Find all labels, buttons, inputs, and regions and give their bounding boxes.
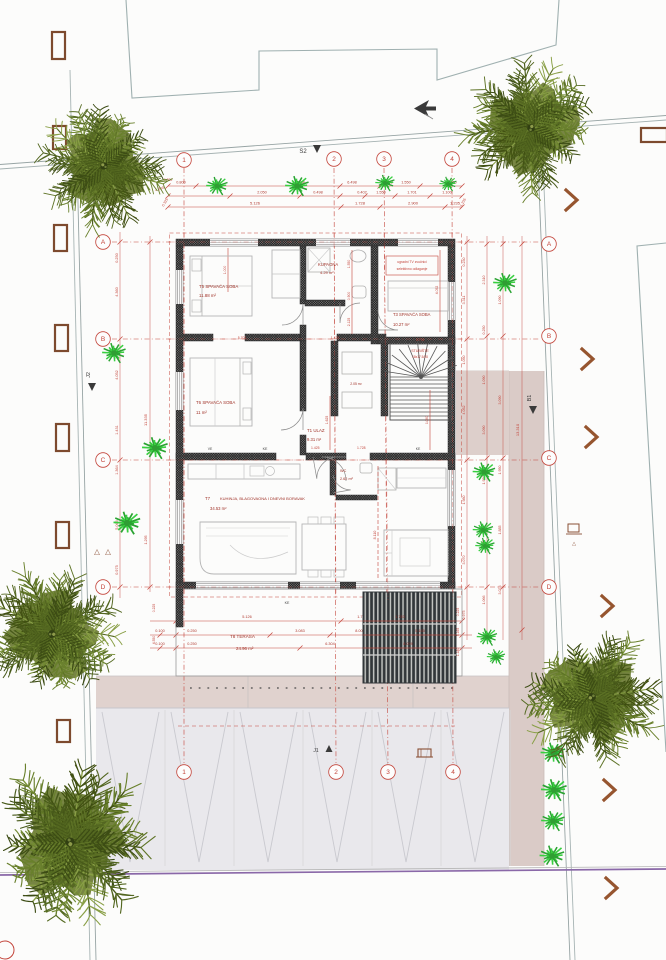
svg-text:KE: KE	[285, 601, 290, 605]
svg-text:4: 4	[451, 769, 455, 776]
svg-text:0.800: 0.800	[176, 181, 186, 185]
svg-text:A: A	[547, 241, 552, 248]
svg-text:2.05 m²: 2.05 m²	[350, 382, 362, 386]
svg-text:3.078: 3.078	[498, 586, 502, 595]
svg-text:J1: J1	[313, 748, 319, 754]
svg-text:4.550: 4.550	[152, 636, 156, 645]
svg-text:2: 2	[334, 769, 338, 776]
svg-text:S2: S2	[299, 149, 307, 155]
svg-text:11 m²: 11 m²	[196, 410, 207, 415]
svg-text:J2: J2	[86, 372, 92, 378]
svg-text:1.550: 1.550	[376, 191, 386, 195]
svg-text:3.778: 3.778	[416, 338, 425, 342]
svg-text:1.180: 1.180	[456, 648, 460, 657]
svg-text:0.498: 0.498	[313, 191, 323, 195]
svg-text:10.27 m²: 10.27 m²	[393, 322, 410, 327]
svg-text:△: △	[572, 541, 576, 547]
svg-text:4: 4	[450, 156, 454, 163]
svg-text:1.090: 1.090	[482, 376, 486, 385]
svg-text:D: D	[547, 584, 552, 591]
svg-text:1.783: 1.783	[395, 615, 405, 619]
svg-text:9.31 m²: 9.31 m²	[307, 437, 322, 442]
svg-text:0.402: 0.402	[357, 191, 367, 195]
svg-text:1.885: 1.885	[498, 526, 502, 535]
svg-text:T7: T7	[205, 496, 211, 501]
svg-text:T1 ULAZ: T1 ULAZ	[307, 428, 325, 433]
svg-text:1.364: 1.364	[115, 465, 119, 475]
svg-text:5.165: 5.165	[456, 628, 460, 637]
svg-text:1.728: 1.728	[357, 446, 366, 450]
svg-text:3.090: 3.090	[482, 426, 486, 435]
svg-text:1.050: 1.050	[462, 356, 466, 365]
svg-text:0.225: 0.225	[152, 604, 156, 613]
svg-text:0.250: 0.250	[482, 326, 486, 335]
svg-text:T3 SPAVAĆA SOBA: T3 SPAVAĆA SOBA	[393, 312, 431, 317]
svg-text:T8 TERASA: T8 TERASA	[230, 634, 256, 639]
svg-text:6.304: 6.304	[325, 642, 335, 646]
svg-text:34.53 m²: 34.53 m²	[210, 506, 227, 511]
svg-text:4.360: 4.360	[115, 287, 119, 297]
svg-text:3: 3	[386, 769, 390, 776]
svg-text:1.066: 1.066	[482, 596, 486, 605]
svg-text:1.550: 1.550	[401, 181, 411, 185]
svg-text:0.975: 0.975	[462, 611, 466, 620]
svg-text:0.230: 0.230	[462, 258, 466, 267]
svg-text:5.126: 5.126	[242, 615, 252, 619]
svg-text:A: A	[101, 239, 106, 246]
svg-text:2.62 m²: 2.62 m²	[340, 477, 354, 481]
svg-text:3.070: 3.070	[462, 556, 466, 565]
svg-text:13.310: 13.310	[515, 423, 520, 436]
svg-text:2.125: 2.125	[347, 318, 351, 327]
svg-text:0.250: 0.250	[187, 629, 197, 633]
svg-text:1.950: 1.950	[498, 466, 502, 475]
svg-text:24.96 m²: 24.96 m²	[236, 646, 254, 651]
svg-text:1.425: 1.425	[311, 446, 320, 450]
svg-text:5.126: 5.126	[250, 201, 261, 206]
svg-text:KE: KE	[416, 447, 421, 451]
svg-text:3.311: 3.311	[462, 296, 466, 305]
svg-text:1.100: 1.100	[442, 191, 452, 195]
svg-text:3: 3	[382, 156, 386, 163]
svg-text:3.090: 3.090	[498, 396, 502, 405]
svg-text:KUHINJA, BLAGOVAONA I DNEVNI B: KUHINJA, BLAGOVAONA I DNEVNI BORAVAK	[220, 496, 305, 501]
svg-text:18x17.5/28: 18x17.5/28	[412, 355, 428, 359]
svg-text:1: 1	[182, 157, 186, 164]
svg-text:KUPAONA: KUPAONA	[318, 262, 338, 267]
svg-text:8.110: 8.110	[373, 531, 377, 540]
svg-text:0.250: 0.250	[187, 642, 197, 646]
svg-text:8.009: 8.009	[403, 642, 413, 646]
svg-text:11.88 m²: 11.88 m²	[199, 293, 217, 298]
svg-text:5.702: 5.702	[238, 336, 247, 340]
svg-text:0.900: 0.900	[347, 292, 351, 301]
svg-text:0.225: 0.225	[456, 608, 460, 617]
svg-text:1.625: 1.625	[325, 416, 329, 425]
svg-text:2: 2	[332, 156, 336, 163]
svg-text:11.335: 11.335	[143, 413, 148, 426]
svg-text:B1: B1	[527, 395, 533, 402]
svg-text:1.550: 1.550	[347, 260, 351, 269]
svg-text:T6 SPAVAĆA SOBA: T6 SPAVAĆA SOBA	[196, 400, 235, 405]
svg-text:4.052: 4.052	[435, 286, 439, 295]
svg-text:3.083: 3.083	[295, 629, 305, 633]
svg-text:4.052: 4.052	[462, 406, 466, 415]
svg-text:STUBIŠTE: STUBIŠTE	[411, 348, 429, 353]
svg-text:4.052: 4.052	[115, 370, 119, 380]
svg-text:0.100: 0.100	[155, 642, 165, 646]
svg-text:2.310: 2.310	[482, 276, 486, 285]
svg-text:1: 1	[182, 769, 186, 776]
svg-text:0.100: 0.100	[155, 629, 165, 633]
svg-text:KE: KE	[263, 447, 268, 451]
svg-text:WC: WC	[340, 469, 347, 473]
svg-text:6.498: 6.498	[347, 181, 357, 185]
svg-text:2.050: 2.050	[257, 191, 267, 195]
svg-text:C: C	[101, 457, 106, 464]
svg-text:1.980: 1.980	[462, 496, 466, 505]
svg-text:1.090: 1.090	[498, 296, 502, 305]
svg-text:1.425: 1.425	[331, 336, 340, 340]
svg-text:4.29 m²: 4.29 m²	[320, 270, 334, 275]
svg-text:0.975: 0.975	[115, 565, 119, 575]
svg-text:1.090: 1.090	[425, 416, 429, 424]
svg-text:1.295: 1.295	[144, 536, 148, 545]
svg-text:B: B	[101, 336, 105, 343]
svg-text:2.900: 2.900	[408, 201, 419, 206]
svg-text:C: C	[547, 455, 552, 462]
svg-text:1.701: 1.701	[407, 191, 417, 195]
svg-text:5.165: 5.165	[415, 629, 425, 633]
svg-text:VE: VE	[208, 447, 213, 451]
svg-text:0.250: 0.250	[115, 253, 119, 263]
svg-text:B: B	[547, 333, 551, 340]
svg-text:1.000: 1.000	[223, 266, 227, 275]
svg-text:1.431: 1.431	[115, 425, 119, 435]
svg-text:selektivno odlaganje: selektivno odlaganje	[397, 267, 428, 271]
svg-text:D: D	[101, 584, 106, 591]
svg-text:ugradni TV zvučnici: ugradni TV zvučnici	[397, 260, 427, 264]
svg-text:1.728: 1.728	[355, 201, 366, 206]
svg-text:T5 SPAVAĆA SOBA: T5 SPAVAĆA SOBA	[199, 284, 238, 289]
